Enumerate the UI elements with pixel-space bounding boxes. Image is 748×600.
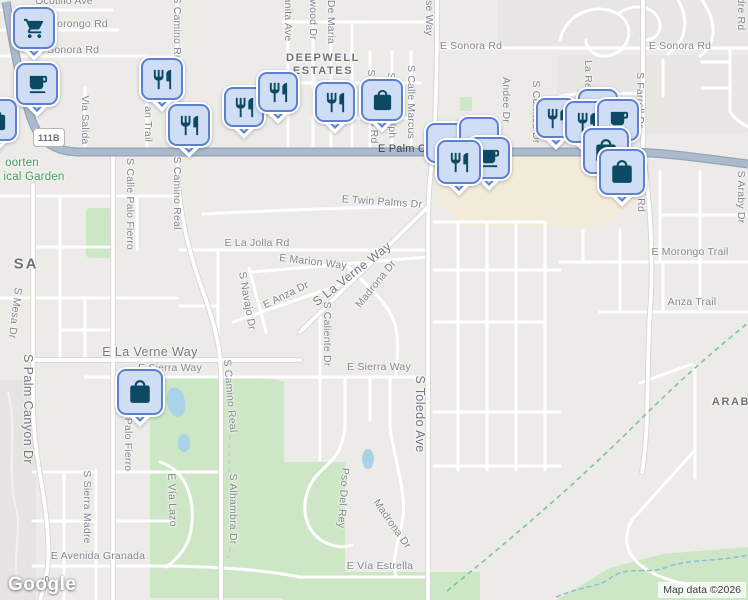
restaurant-icon bbox=[151, 68, 174, 91]
map-pin-cart[interactable] bbox=[13, 7, 55, 49]
cafe-icon bbox=[26, 73, 49, 96]
map-pin-bag[interactable] bbox=[361, 79, 403, 121]
pin-body bbox=[258, 72, 298, 112]
google-logo[interactable]: Google bbox=[8, 574, 76, 596]
map-pin-restaurant[interactable] bbox=[315, 82, 355, 122]
pin-body bbox=[361, 79, 403, 121]
restaurant-icon bbox=[233, 96, 256, 119]
cart-icon bbox=[23, 17, 46, 40]
map-pin-restaurant[interactable] bbox=[437, 140, 481, 184]
map-pin-bag[interactable] bbox=[599, 149, 645, 195]
bag-icon bbox=[371, 89, 394, 112]
map-pin-cafe[interactable] bbox=[16, 63, 58, 105]
pin-body bbox=[0, 99, 17, 141]
map-canvas[interactable]: Ocotillo AveMorongo RdE Sonora RdE Sonor… bbox=[0, 0, 748, 600]
bag-icon bbox=[0, 109, 8, 132]
map-pin-restaurant[interactable] bbox=[258, 72, 298, 112]
map-pin-restaurant[interactable] bbox=[141, 58, 183, 100]
pin-body bbox=[141, 58, 183, 100]
pin-body bbox=[315, 82, 355, 122]
restaurant-icon bbox=[324, 91, 347, 114]
bag-icon bbox=[127, 379, 153, 405]
restaurant-icon bbox=[267, 81, 290, 104]
pin-body bbox=[117, 369, 163, 415]
pin-body bbox=[168, 104, 210, 146]
pin-body bbox=[16, 63, 58, 105]
pin-body bbox=[599, 149, 645, 195]
restaurant-icon bbox=[448, 151, 471, 174]
restaurant-icon bbox=[178, 114, 201, 137]
bag-icon bbox=[609, 159, 635, 185]
map-pin-bag[interactable] bbox=[0, 99, 17, 141]
pin-body bbox=[13, 7, 55, 49]
map-pin-bag[interactable] bbox=[117, 369, 163, 415]
map-pin-restaurant[interactable] bbox=[168, 104, 210, 146]
pin-body bbox=[437, 140, 481, 184]
